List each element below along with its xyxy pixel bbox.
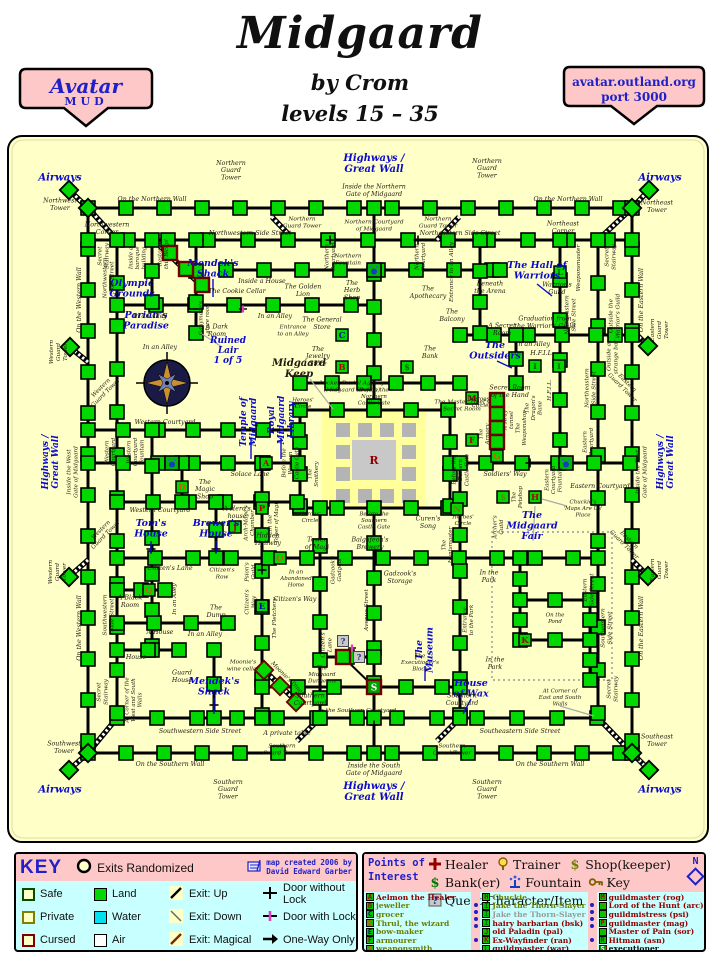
map-label: In an Alley — [132, 313, 168, 320]
map-room — [513, 593, 527, 607]
poi-divider — [588, 892, 597, 952]
map-label: Northeastern Side Street — [419, 230, 501, 237]
poi-divider-dot — [590, 910, 594, 914]
map-room — [347, 201, 361, 215]
poi-column-3: Mguildmaster (rog)NLord of the Hunt (arc… — [597, 892, 704, 952]
map-room — [430, 711, 444, 725]
map-label: Inside a House — [237, 278, 286, 285]
compass-center — [165, 381, 169, 385]
map-label: A straytunnel — [503, 409, 516, 431]
poi-icon-item-fountain: Fountain — [507, 873, 581, 891]
map-label: Balgafeon'sBrewery — [350, 537, 389, 551]
compass-diamond-icon — [686, 867, 704, 885]
key-legend-grid: SafeLandExit: UpDoor without LockPrivate… — [16, 881, 356, 950]
map-room — [110, 706, 124, 720]
key-item-label: Door with Lock — [283, 911, 356, 923]
map-label: SoutheasternSide Street — [601, 608, 614, 648]
map-label: WesternCourtyardFountain — [126, 437, 145, 466]
map-label: NorthernFountain — [333, 254, 362, 267]
exit-magical-icon — [168, 931, 184, 947]
poi-entry: RHitman (asn) — [599, 936, 704, 945]
map-room — [461, 201, 475, 215]
poi-icon-item-bank: $Bank(er) — [427, 873, 500, 891]
map-label: In an Alley — [187, 631, 223, 638]
poi-letter-chip: S — [599, 945, 607, 952]
map-room — [145, 459, 159, 473]
letter-room-glyph: G — [493, 452, 500, 462]
map-label: EasternCourtyard — [583, 427, 596, 456]
map-room — [233, 201, 247, 215]
castle-wall-block — [336, 423, 350, 437]
map-label: Western Courtyard — [135, 419, 196, 426]
poi-entry: Bjeweller — [366, 902, 471, 911]
map-label: WesternCourtyard — [105, 437, 118, 466]
fountain-icon — [563, 462, 569, 468]
map-label: WesternGuardTower — [49, 340, 69, 364]
map-room — [330, 403, 344, 417]
letter-room-glyph: I — [557, 362, 561, 372]
letter-room-glyph: O — [276, 554, 284, 564]
map-label: In the Southern Courtyard — [317, 708, 396, 714]
map-room — [548, 633, 562, 647]
quest-question-icon: ? — [357, 652, 362, 662]
scroll-icon — [247, 858, 263, 877]
swatch-cursed — [22, 934, 35, 947]
map-room — [453, 711, 467, 725]
map-room — [625, 233, 639, 247]
letter-room-glyph: F — [469, 436, 475, 446]
poi-divider-dot — [474, 931, 478, 935]
map-label: Heroes'Circle — [291, 398, 314, 411]
poi-entry: HChuckie — [482, 893, 587, 902]
map-room — [367, 300, 381, 314]
map-label: GuardHouse — [171, 670, 193, 684]
letter-room-glyph: K — [521, 636, 529, 646]
castle-wall-block — [402, 445, 416, 459]
map-label: Inside the NorthernGate of Midgaard — [341, 184, 406, 198]
poi-letter-chip: D — [366, 919, 374, 927]
key-item-label: Air — [112, 934, 125, 946]
map-room — [309, 201, 323, 215]
swatch-private — [22, 911, 35, 924]
map-room — [148, 551, 162, 565]
poi-entry: KEx-Wayfinder (ran) — [482, 936, 587, 945]
poi-entry: Cgrocer — [366, 910, 471, 919]
map-label: Heroes'Circle — [468, 397, 491, 410]
map-room — [528, 551, 542, 565]
map-label: A BlackRoom — [117, 595, 142, 609]
map-room — [453, 636, 467, 650]
map-room — [271, 201, 285, 215]
exits-randomized-label: Exits Randomized — [97, 861, 194, 875]
poi-letter-chip: A — [366, 893, 374, 901]
swatch-safe — [22, 888, 35, 901]
key-item-exit-down: Exit: Down — [168, 907, 262, 927]
map-label: Weaponsmaster — [576, 243, 582, 291]
map-room — [224, 551, 238, 565]
map-room — [221, 423, 235, 437]
map-label: In thePark — [479, 570, 499, 584]
map-room — [172, 643, 186, 657]
map-room — [158, 583, 172, 597]
poi-entry-name: executioner — [609, 944, 659, 952]
poi-entry: DThrul, the wizard — [366, 919, 471, 928]
map-label: H.F.I.L. — [529, 350, 554, 357]
map-room — [81, 423, 95, 437]
fountain-icon — [371, 269, 377, 275]
map-label: Towerof Magi — [305, 537, 329, 551]
map-label: House — [125, 654, 147, 661]
poi-entry: Gweaponsmith — [366, 945, 471, 952]
poi-column-2: HChuckieIJake the Thorn-SlayerIJake the … — [480, 892, 587, 952]
key-item-label: Exit: Down — [189, 911, 242, 923]
map-room — [255, 680, 269, 694]
letter-room-glyph: N — [453, 505, 461, 515]
map-label: Highways /Great Wall — [656, 433, 676, 491]
map-room — [591, 233, 605, 247]
svg-text:$: $ — [430, 876, 439, 890]
map-room — [513, 551, 527, 565]
map-label: On the Southern Wall — [136, 761, 205, 768]
poi-letter-chip: K — [482, 936, 490, 944]
map-room — [313, 577, 327, 591]
midgaard-map: RABC$DEFGHIIJKLMNOPQ$S??AirwaysAirwaysAi… — [4, 133, 716, 847]
poi-icon-item-healer: Healer — [427, 855, 488, 873]
poi-icon-label: Bank(er) — [445, 875, 500, 890]
map-room — [157, 746, 171, 760]
shop-icon: $ — [567, 856, 583, 872]
key-legend: KEY Exits Randomized map created 2006 by… — [14, 852, 358, 952]
key-item-water: Water — [94, 907, 168, 927]
map-room — [575, 746, 589, 760]
cursed-room — [336, 650, 350, 664]
exit-up-icon — [168, 885, 184, 901]
map-room — [376, 551, 390, 565]
healer-icon — [427, 856, 443, 872]
map-room — [625, 693, 639, 707]
map-label: Gadzook'sGadgets — [331, 556, 344, 585]
poi-icon-label: Shop(keeper) — [585, 857, 671, 872]
map-room — [493, 263, 507, 277]
server-address: avatar.outland.org — [572, 75, 696, 89]
poi-icon-key: HealerTrainer$Shop(keeper)$Bank(er)Fount… — [427, 854, 687, 892]
map-label: Brewer'sHouse — [192, 518, 240, 540]
map-room — [625, 652, 639, 666]
map-label: Before theNorthernCastle Gate — [358, 387, 391, 406]
map-room — [399, 680, 413, 694]
fountain-drop — [562, 459, 564, 461]
map-room — [367, 201, 381, 215]
map-room — [195, 746, 209, 760]
map-room — [625, 365, 639, 379]
poi-letter-chip: N — [599, 902, 607, 910]
map-room — [300, 551, 314, 565]
poi-divider-dot — [590, 896, 594, 900]
key-legend-header: KEY Exits Randomized map created 2006 by… — [16, 854, 356, 881]
map-room — [513, 613, 527, 627]
map-label: Psion'sGuild — [245, 562, 258, 583]
map-room — [309, 746, 323, 760]
map-label: Graduation fromthe Warrior's Guild — [515, 316, 576, 330]
map-label: Inside the SouthGate of Midgaard — [346, 763, 402, 777]
map-label: SouthernCourtyard — [294, 693, 327, 707]
letter-room-glyph: C — [339, 331, 346, 341]
map-label: Heroes'Circle — [298, 512, 321, 525]
map-room — [195, 201, 209, 215]
map-label: On the Eastern Wall — [638, 596, 645, 660]
map-label: SouthernCourtyard — [446, 693, 479, 707]
map-label: EasternCourtyardFountain — [544, 465, 563, 494]
map-label: Citizen's Way — [274, 596, 317, 603]
poi-divider-dot — [474, 917, 478, 921]
map-room — [313, 615, 327, 629]
map-label: Citizen's Lane — [147, 565, 192, 572]
exits-randomized-icon — [76, 858, 92, 877]
one-way-icon-wrap — [262, 931, 278, 950]
map-label: Highways /Great Wall — [342, 153, 406, 175]
map-room — [330, 501, 344, 515]
poi-letter-chip: F — [366, 936, 374, 944]
poi-divider-dot — [590, 924, 594, 928]
map-room — [499, 201, 513, 215]
map-label: Airways — [37, 173, 82, 184]
map-label: Airways — [37, 785, 82, 796]
map-room — [625, 406, 639, 420]
castle-wall-block — [358, 423, 372, 437]
poi-letter-chip: C — [366, 910, 374, 918]
poi-letter-chip: M — [599, 893, 607, 901]
map-label: TheHerbShop — [343, 280, 360, 302]
map-label: Beneaththe Arena — [474, 281, 506, 295]
key-item-exit-magical: Exit: Magical — [168, 930, 262, 950]
poi-entry: AAelmon the Healer — [366, 893, 471, 902]
map-label: On the Northern Wall — [118, 196, 187, 203]
poi-icon-label: Key — [606, 875, 629, 890]
map-room — [110, 534, 124, 548]
poi-divider-dot — [474, 924, 478, 928]
map-room — [385, 201, 399, 215]
poi-icon-item-key: Key — [588, 873, 629, 891]
map-room — [110, 551, 124, 565]
poi-icon-label: Trainer — [513, 857, 560, 872]
map-label: Soldiers' Way — [483, 471, 527, 478]
map-label: The Cookie Cellar — [208, 288, 266, 295]
poi-entry: Lguildmaster (war) — [482, 945, 587, 952]
map-room — [473, 264, 487, 278]
map-room — [186, 551, 200, 565]
poi-letter-chip: J — [482, 928, 490, 936]
map-room — [150, 711, 164, 725]
poi-icon-item-trainer: Trainer — [495, 855, 560, 873]
map-room — [591, 276, 605, 290]
poi-letter-chip: P — [599, 919, 607, 927]
compass-mini: N — [687, 854, 704, 892]
castle-wall-block — [336, 445, 350, 459]
map-label: Southeastern Side Street — [480, 728, 561, 735]
poi-legend-title: Points of Interest — [364, 854, 427, 892]
map-room — [513, 572, 527, 586]
exit-down-icon-wrap — [168, 908, 184, 927]
map-room — [110, 643, 124, 657]
map-room — [270, 711, 284, 725]
letter-room-glyph: $ — [500, 493, 506, 503]
map-room — [591, 405, 605, 419]
map-room — [81, 233, 95, 247]
map-room — [453, 528, 467, 542]
map-room — [625, 611, 639, 625]
map-room — [110, 405, 124, 419]
poi-legend-body: AAelmon the HealerBjewellerCgrocerDThrul… — [364, 892, 704, 952]
map-label: Outside theWarrior's Guild — [609, 293, 622, 338]
map-room — [233, 746, 247, 760]
map-label: Gadzook'sStorage — [384, 571, 417, 585]
poi-entry: IJake the Thorn-Slayer — [482, 910, 587, 919]
map-room — [490, 551, 504, 565]
castle-wall-block — [402, 423, 416, 437]
map-room — [110, 495, 124, 509]
map-room — [550, 711, 564, 725]
map-room — [81, 456, 95, 470]
map-room — [453, 328, 467, 342]
door-lock-icon-wrap — [262, 908, 278, 927]
key-item-label: Safe — [40, 888, 63, 900]
key-legend-title: KEY — [20, 857, 62, 879]
map-room — [367, 650, 381, 664]
map-label: TheBank — [421, 346, 438, 360]
door-icon — [262, 885, 278, 901]
poi-entry: Farmourer — [366, 936, 471, 945]
map-room — [404, 501, 418, 515]
key-item-land: Land — [94, 884, 168, 904]
map-room — [548, 593, 562, 607]
map-room — [207, 643, 221, 657]
letter-room-glyph: D — [178, 483, 186, 493]
quest-question-icon: ? — [341, 636, 346, 646]
poi-column-1: AAelmon the HealerBjewellerCgrocerDThrul… — [364, 892, 471, 952]
letter-room-glyph: H — [531, 493, 539, 503]
key-item-label: Land — [112, 888, 136, 900]
map-label: H.F.I.L. — [547, 379, 553, 402]
map-room — [367, 746, 381, 760]
map-room — [591, 706, 605, 720]
key-item-door-with-lock: Door with Lock — [262, 907, 358, 927]
fountain-drop — [568, 459, 570, 461]
poi-letter-chip: L — [482, 945, 490, 952]
poi-divider — [471, 892, 480, 952]
fountain-drop — [370, 266, 372, 268]
map-room — [443, 435, 457, 449]
map-room — [110, 362, 124, 376]
castle-wall-block — [380, 423, 394, 437]
svg-text:$: $ — [571, 858, 580, 872]
map-room — [453, 564, 467, 578]
map-room — [347, 746, 361, 760]
map-room — [625, 328, 639, 342]
map-label: On the Western Wall — [76, 595, 83, 660]
exit-magical-icon-wrap — [168, 931, 184, 950]
trainer-icon — [495, 856, 511, 872]
map-label: Inside the EastGate of Midgaard — [636, 446, 649, 498]
map-room — [110, 298, 124, 312]
map-room — [361, 233, 375, 247]
map-room — [589, 328, 603, 342]
map-room — [537, 746, 551, 760]
map-label: In an Alley — [142, 344, 178, 351]
page: { "header":{ "title":"Midgaard","author"… — [0, 0, 720, 960]
map-label: A House — [146, 629, 174, 636]
map-label: Secret Roomof the Hand — [489, 385, 530, 399]
poi-entry: Mguildmaster (rog) — [599, 893, 704, 902]
letter-room-glyph: Q — [145, 586, 153, 596]
map-label: SouthwesternSide Street — [103, 594, 116, 635]
key-item-cursed: Cursed — [22, 930, 94, 950]
map-label: Inside the WestGate of Midgaard — [67, 446, 80, 498]
circle-icon — [76, 858, 92, 874]
swatch-land — [94, 888, 107, 901]
map-label: Restoresthis Bicep! — [158, 239, 171, 269]
address-shield: avatar.outland.org port 3000 — [560, 64, 708, 128]
fountain-drop — [174, 459, 176, 461]
letter-room-glyph: B — [338, 363, 345, 373]
letter-room-glyph: E — [259, 602, 266, 612]
page-title: Midgaard — [0, 8, 720, 59]
poi-entry-name: weaponsmith — [376, 944, 432, 952]
castle-wall-block — [336, 467, 350, 481]
key-item-one-way-only: One-Way Only — [262, 930, 358, 950]
map-label: In an Alley — [257, 313, 293, 320]
map-label: Temple ofMidgaard — [239, 395, 259, 447]
map-label: Before theSouthernCastle Gate — [358, 511, 391, 530]
map-room — [119, 746, 133, 760]
poi-divider-dot — [474, 910, 478, 914]
map-room — [367, 571, 381, 585]
door-lock-icon — [262, 908, 278, 924]
map-label: Avenue Street — [364, 589, 370, 632]
map-room — [583, 673, 597, 687]
map-label: In an Alley — [172, 583, 178, 616]
poi-divider-dot — [590, 903, 594, 907]
map-label: OlympicGrounds — [109, 278, 155, 300]
map-label: On the Eastern Wall — [638, 268, 645, 332]
map-credit-text: map created 2006 by David Edward Garber — [266, 859, 352, 876]
poi-legend-header: Points of Interest HealerTrainer$Shop(ke… — [364, 854, 704, 892]
map-room — [110, 319, 124, 333]
fountain-icon — [169, 462, 175, 468]
map-room — [81, 488, 95, 502]
map-room — [583, 613, 597, 627]
poi-letter-chip: I — [482, 919, 490, 927]
map-room — [591, 534, 605, 548]
poi-icon-label: Healer — [445, 857, 488, 872]
key-item-private: Private — [22, 907, 94, 927]
poi-letter-chip: I — [482, 902, 490, 910]
map-room — [473, 326, 487, 340]
key-item-air: Air — [94, 930, 168, 950]
map-room — [145, 603, 159, 617]
poi-legend: Points of Interest HealerTrainer$Shop(ke… — [362, 852, 706, 952]
map-label: Entranceto the Park — [463, 604, 476, 635]
poi-divider-dot — [474, 896, 478, 900]
map-label: Entranceto an Alley — [277, 325, 309, 338]
poi-icon-item-shop: $Shop(keeper) — [567, 855, 671, 873]
map-label: NorthernCourtyard — [415, 242, 428, 271]
poi-divider-dot — [590, 938, 594, 942]
map-room — [147, 616, 161, 630]
map-frame: RABC$DEFGHIIJKLMNOPQ$S??AirwaysAirwaysAi… — [4, 133, 716, 851]
key-item-safe: Safe — [22, 884, 94, 904]
map-label: A DarkRoom — [205, 324, 228, 338]
map-room — [583, 633, 597, 647]
